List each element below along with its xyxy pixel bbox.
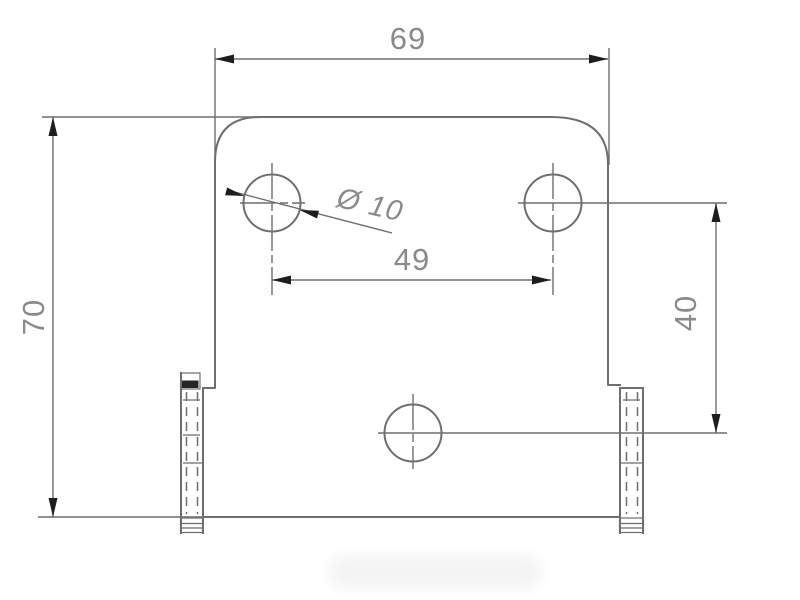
dim-offset-arrow-bottom (712, 414, 721, 433)
dim-spacing-arrow-right (532, 276, 551, 285)
dim-width-arrow-left (215, 55, 234, 64)
right-rail (620, 388, 644, 533)
part-outline (203, 117, 620, 517)
dim-overall-width: 69 (215, 21, 609, 165)
dim-height-label: 70 (16, 299, 51, 335)
leader-arrow-left (225, 188, 244, 197)
leader-arrow-right (300, 210, 319, 219)
dim-spacing-arrow-left (272, 276, 291, 285)
dim-offset-label: 40 (668, 295, 703, 331)
left-rail-bottom-cap (181, 518, 203, 533)
left-rail (181, 373, 204, 533)
left-rail-top-hatch (182, 381, 199, 389)
dim-offset-arrow-top (712, 203, 721, 222)
dim-width-label: 69 (390, 21, 426, 56)
right-rail-bottom-cap (620, 518, 644, 533)
leader-hole-diameter: Ø 10 (225, 182, 406, 233)
technical-drawing: 69 70 49 40 (0, 0, 800, 600)
dim-width-arrow-right (589, 55, 608, 64)
hole-diameter-label: Ø 10 (333, 182, 406, 228)
dim-spacing-label: 49 (394, 242, 430, 277)
dim-hole-spacing: 49 (272, 242, 551, 285)
dim-height-arrow-bottom (49, 498, 58, 517)
scan-artifact (330, 556, 540, 588)
dim-height-arrow-top (49, 117, 58, 136)
drawing-viewport: 69 70 49 40 (0, 0, 800, 600)
dim-overall-height: 70 (16, 117, 262, 517)
